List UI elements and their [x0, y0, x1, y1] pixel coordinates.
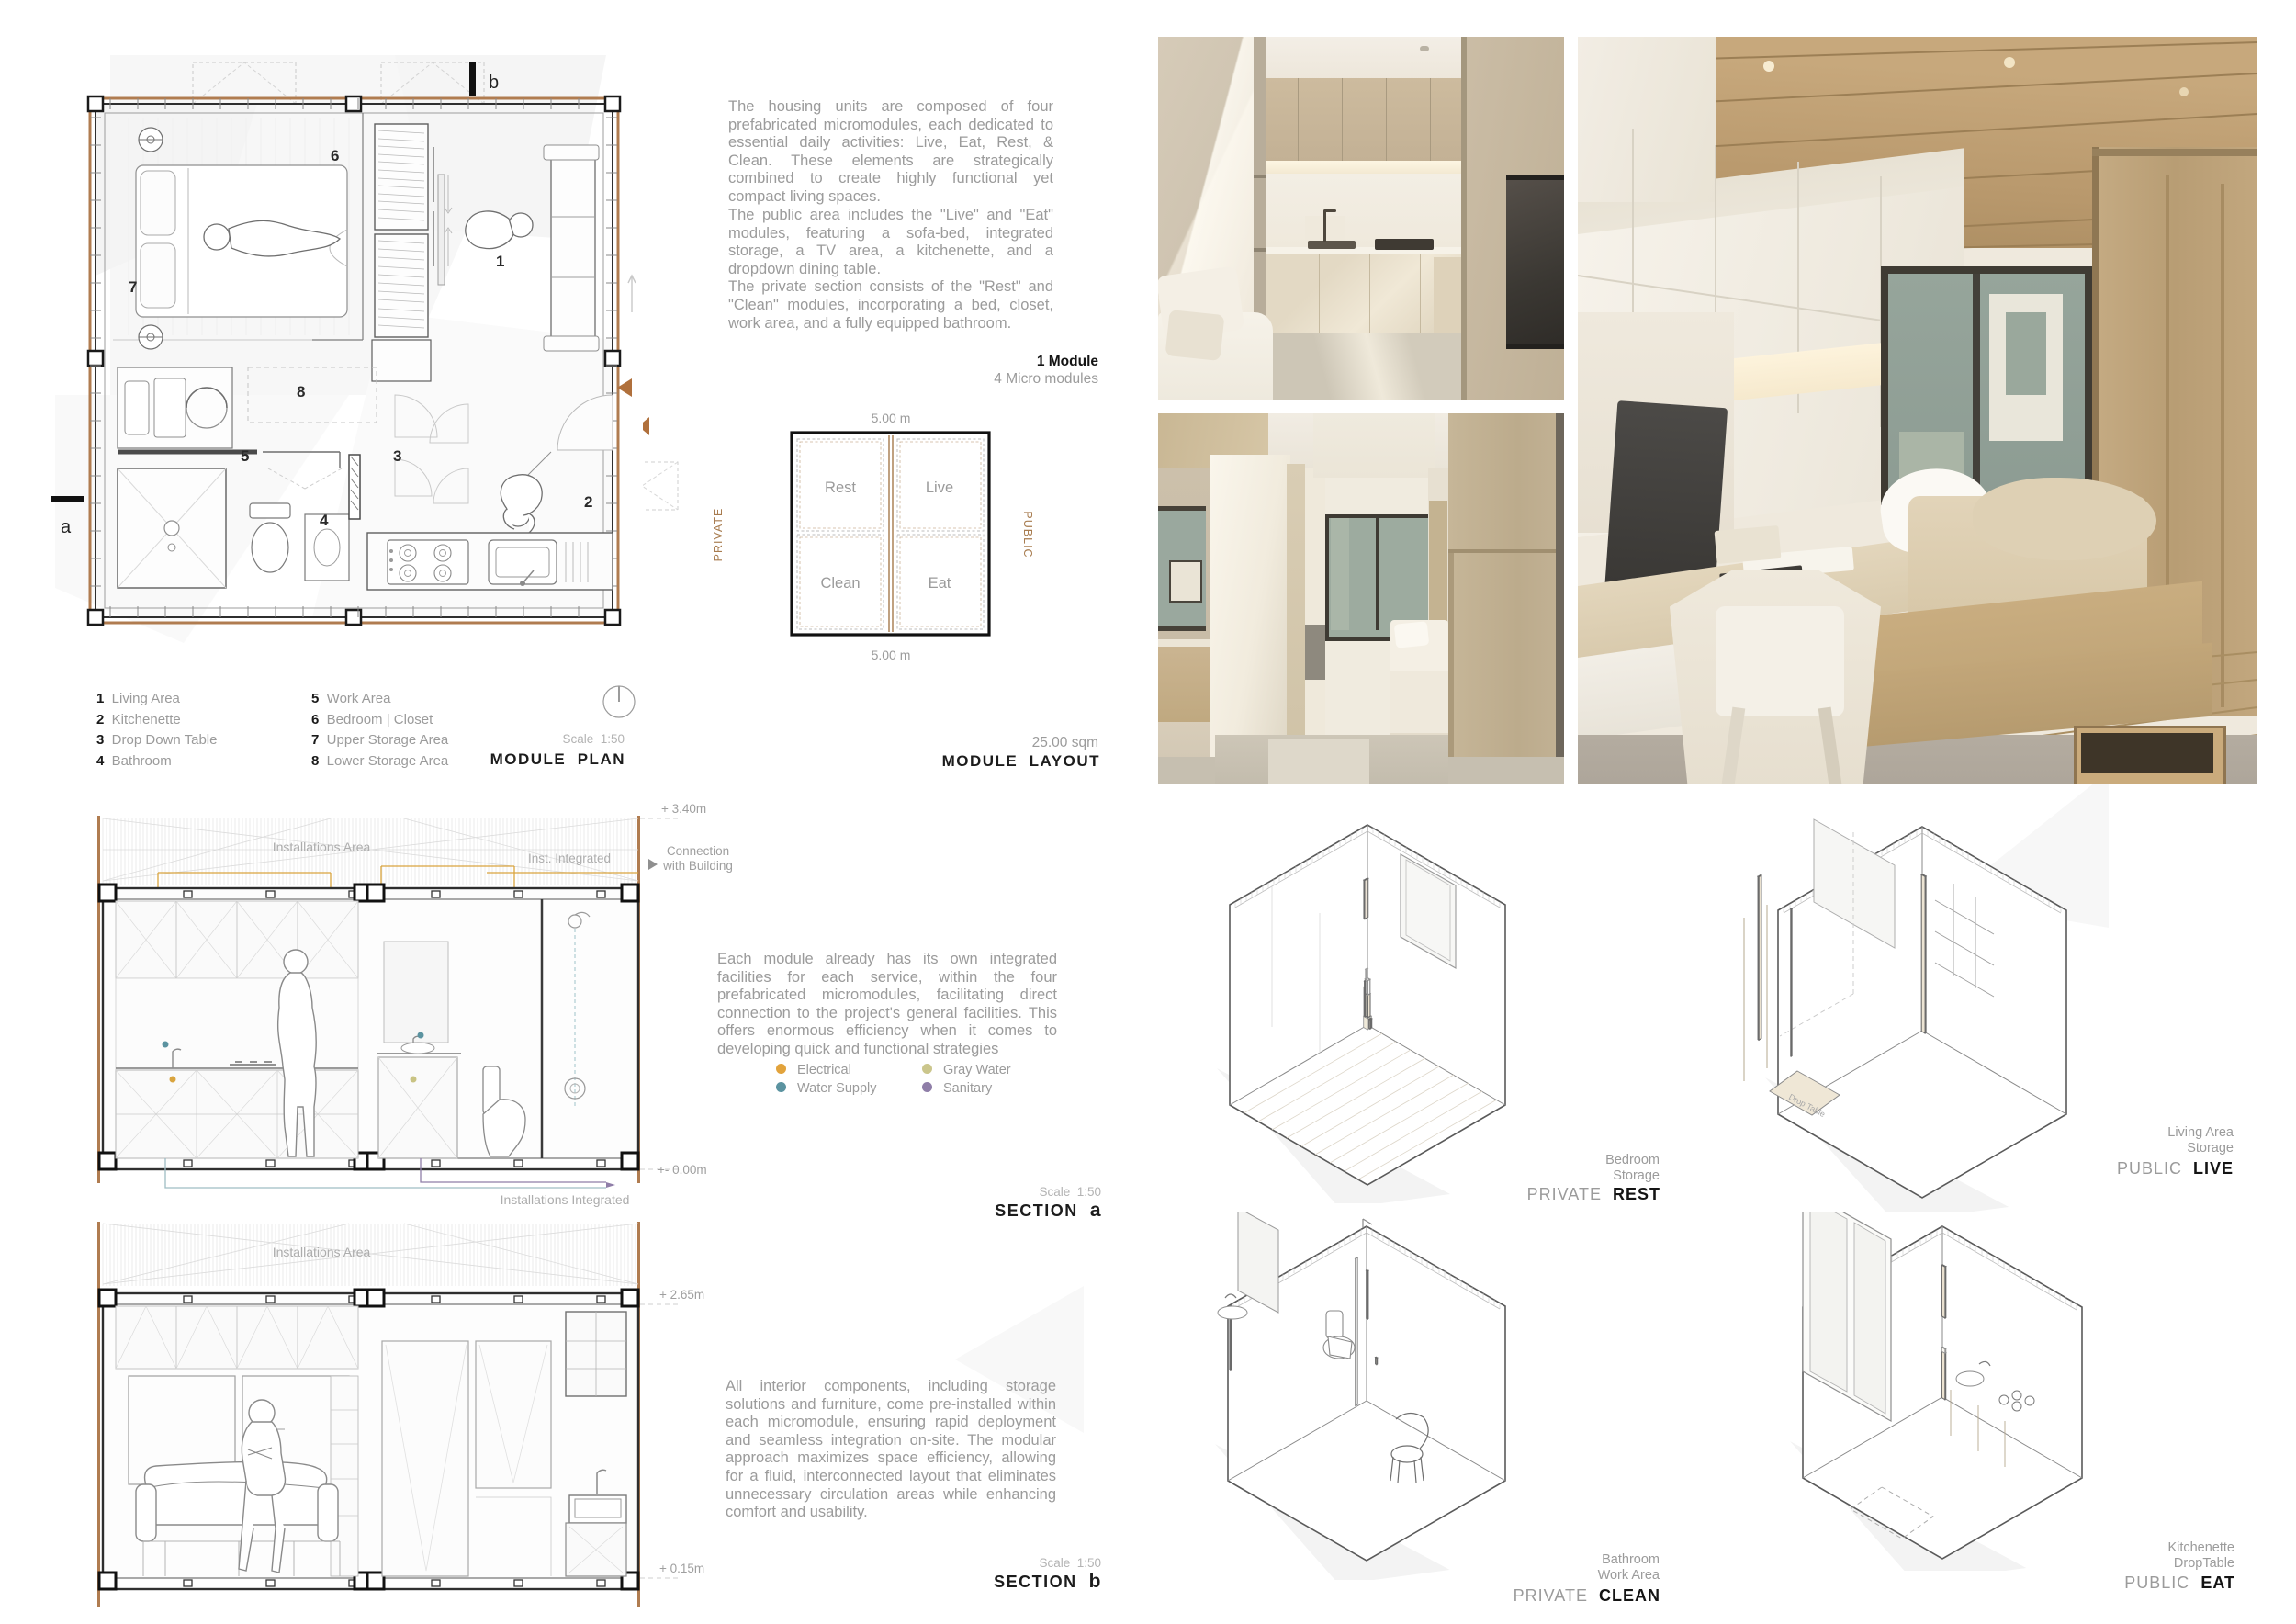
svg-text:+ 3.40m: + 3.40m [661, 804, 706, 816]
svg-text:Rest: Rest [825, 479, 856, 496]
svg-text:+- 0.00m: +- 0.00m [658, 1163, 707, 1177]
svg-text:Installations Integrated: Installations Integrated [501, 1192, 630, 1207]
svg-text:4: 4 [320, 512, 329, 529]
svg-text:+ 0.15m: + 0.15m [659, 1562, 704, 1575]
svg-text:+ 2.65m: + 2.65m [659, 1288, 704, 1302]
svg-text:5.00 m: 5.00 m [872, 411, 911, 425]
svg-text:Live: Live [926, 479, 953, 496]
svg-text:Eat: Eat [929, 575, 951, 592]
svg-text:1: 1 [496, 253, 504, 270]
svg-text:8: 8 [297, 383, 305, 400]
svg-text:PRIVATE: PRIVATE [712, 508, 725, 562]
svg-text:2: 2 [584, 493, 592, 511]
svg-text:Inst. Integrated: Inst. Integrated [528, 851, 611, 865]
svg-text:7: 7 [129, 278, 137, 296]
svg-text:with Building: with Building [662, 859, 733, 873]
svg-text:3: 3 [393, 447, 401, 465]
svg-text:PUBLIC: PUBLIC [1021, 511, 1034, 558]
svg-text:b: b [489, 73, 499, 93]
svg-text:Installations Area: Installations Area [273, 1245, 371, 1259]
svg-text:5: 5 [241, 447, 249, 465]
svg-text:Connection: Connection [667, 844, 729, 858]
svg-text:a: a [61, 517, 72, 537]
svg-text:Installations Area: Installations Area [273, 840, 371, 854]
svg-text:6: 6 [331, 147, 339, 164]
svg-text:Clean: Clean [820, 575, 860, 592]
svg-text:5.00 m: 5.00 m [872, 648, 911, 662]
